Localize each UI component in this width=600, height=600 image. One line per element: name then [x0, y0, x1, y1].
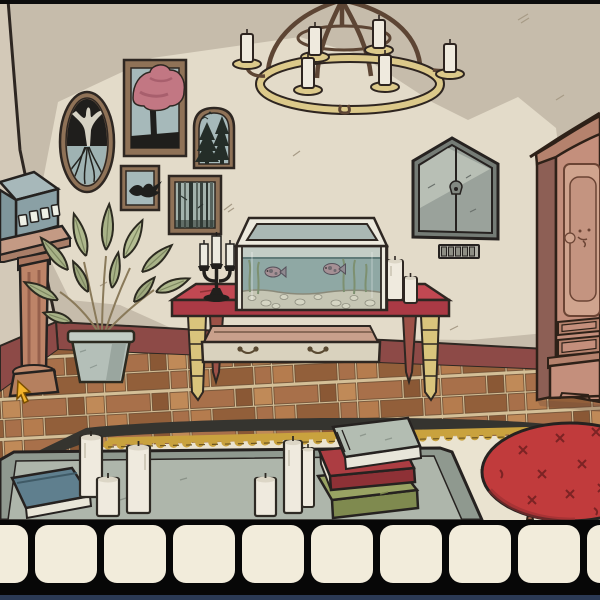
- inventory-slot-10[interactable]: [587, 525, 600, 583]
- open-drawer[interactable]: [202, 326, 380, 362]
- fish-tank[interactable]: [236, 218, 387, 311]
- inventory-slot-4[interactable]: [173, 525, 235, 583]
- game-screen: [0, 0, 600, 600]
- inventory-slot-3[interactable]: [104, 525, 166, 583]
- top-letterbox: [0, 0, 600, 4]
- plant-pot: [68, 331, 134, 382]
- inventory-slot-9[interactable]: [518, 525, 580, 583]
- inventory-slots: [0, 525, 600, 583]
- code-panel[interactable]: [439, 245, 479, 258]
- picture-birch-forest[interactable]: [169, 176, 221, 234]
- inventory-slot-1[interactable]: [0, 525, 28, 583]
- inventory-slot-5[interactable]: [242, 525, 304, 583]
- inventory-slot-8[interactable]: [449, 525, 511, 583]
- inventory-slot-6[interactable]: [311, 525, 373, 583]
- inventory-slot-2[interactable]: [35, 525, 97, 583]
- inventory-bottom-strip: [0, 595, 600, 600]
- keyhole-icon: [450, 181, 462, 194]
- room-scene: [0, 0, 600, 520]
- inventory-bar: [0, 520, 600, 600]
- picture-swallow[interactable]: [121, 166, 162, 210]
- armoire[interactable]: [530, 113, 600, 402]
- picture-pine-trees[interactable]: [194, 108, 234, 168]
- inventory-slot-7[interactable]: [380, 525, 442, 583]
- picture-pink-tree[interactable]: [124, 60, 186, 156]
